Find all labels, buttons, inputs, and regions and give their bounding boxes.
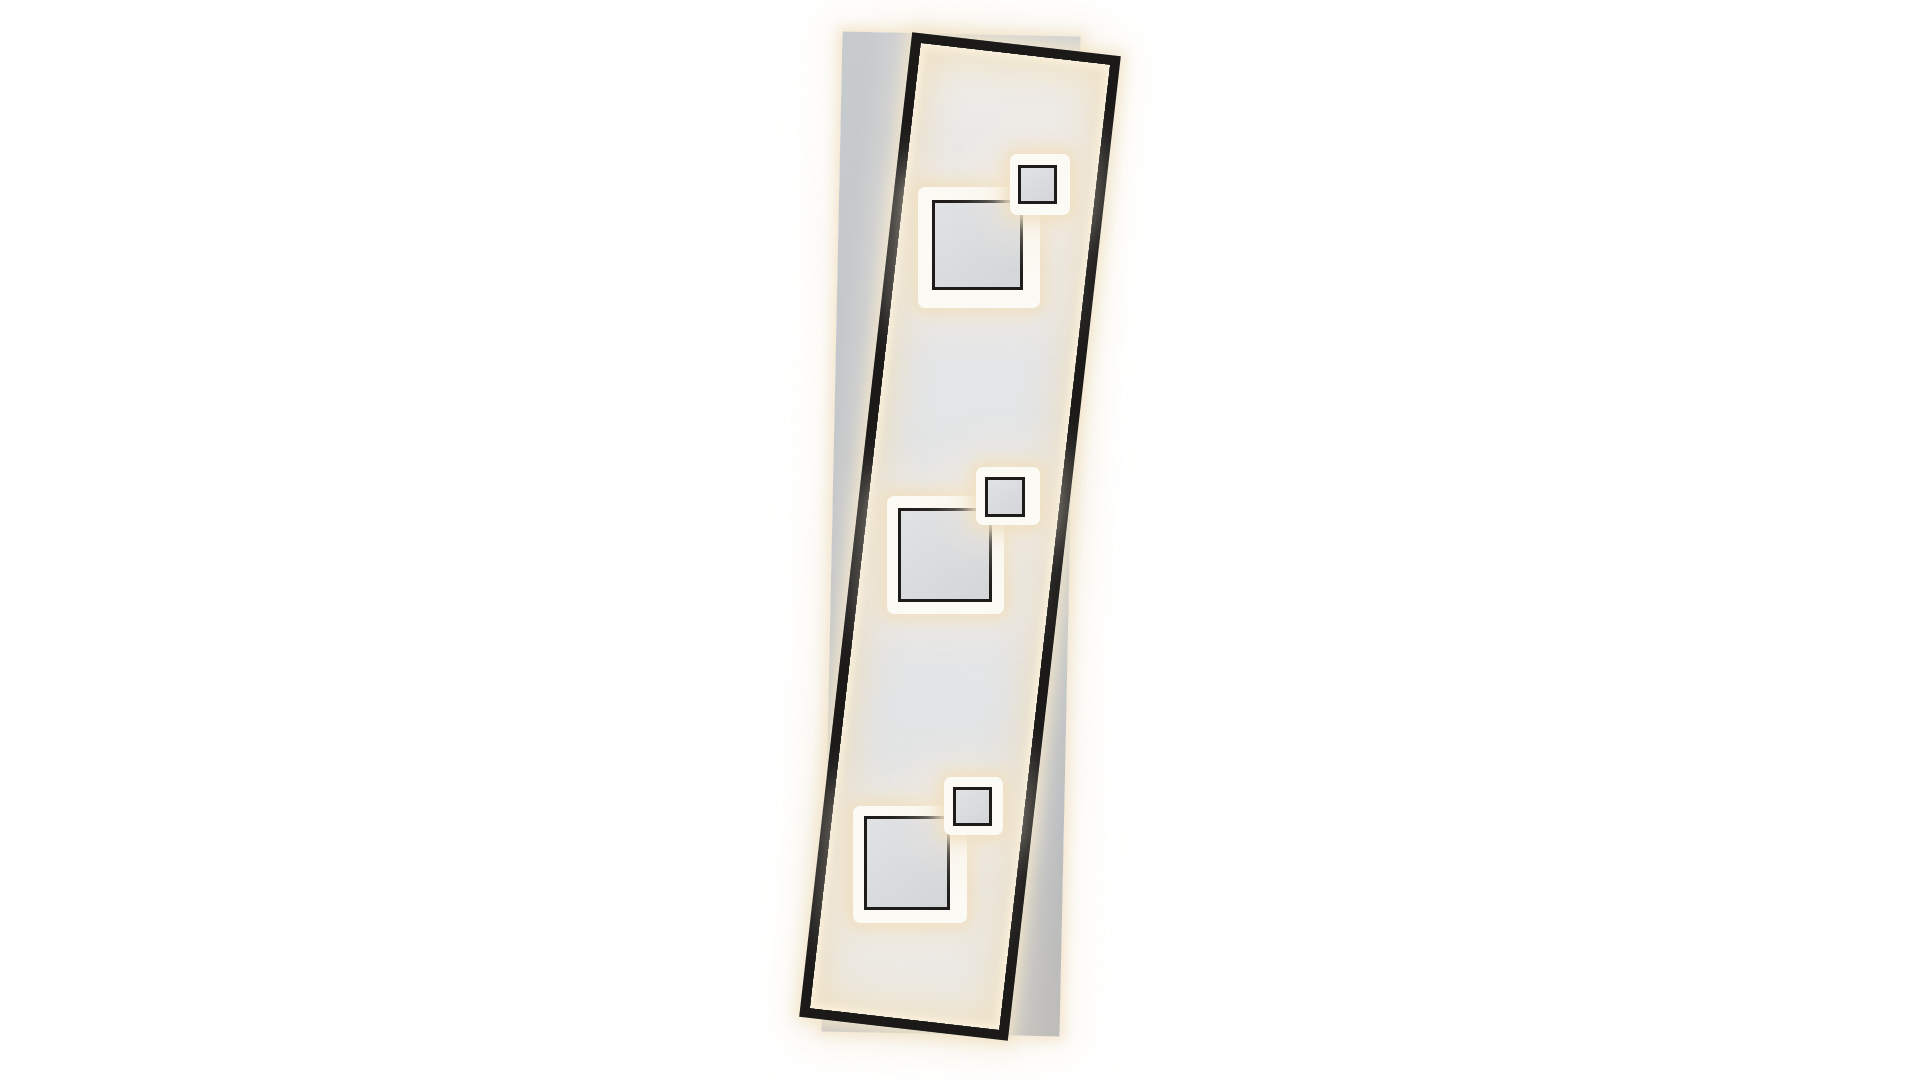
product-photo-canvas: [0, 0, 1920, 1080]
